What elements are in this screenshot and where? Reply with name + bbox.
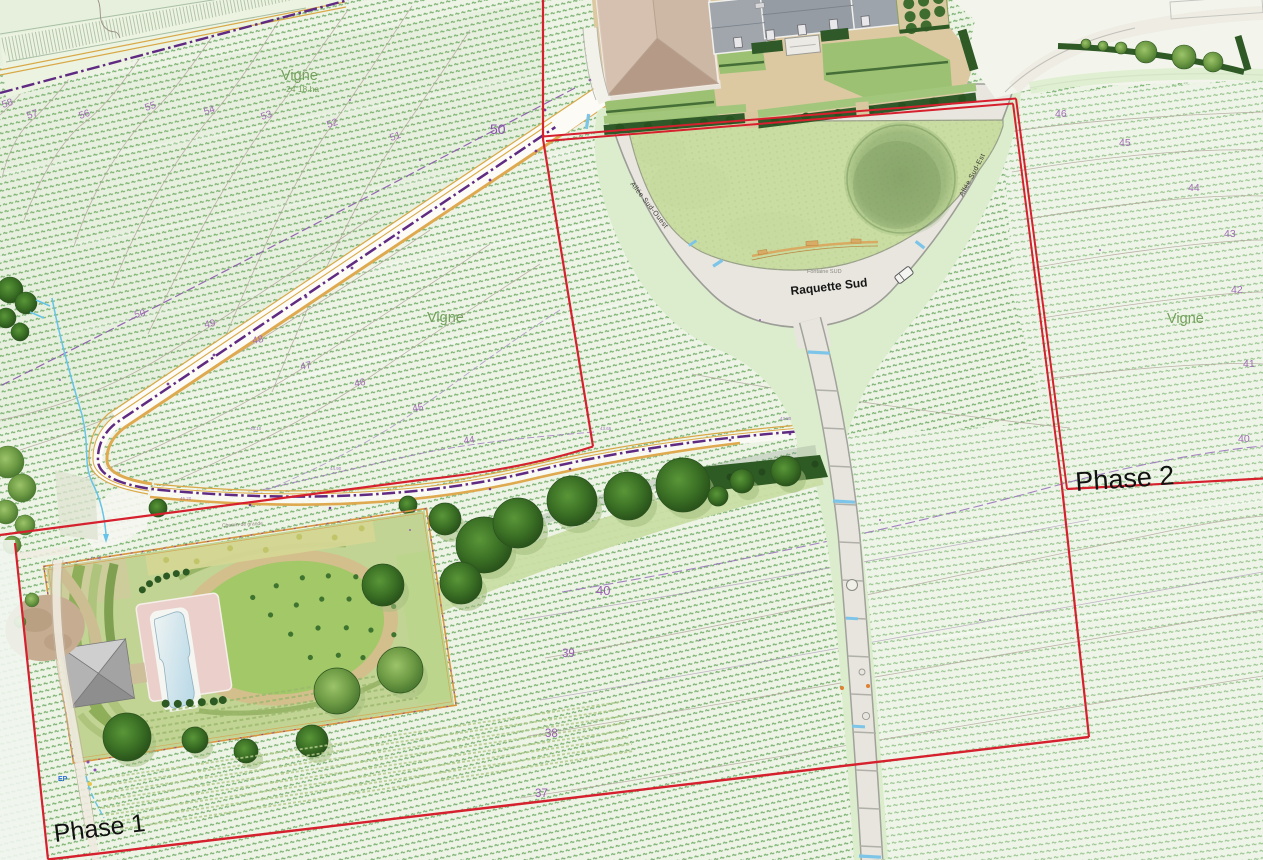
svg-text:37: 37 — [535, 788, 548, 800]
svg-text:Vigne: Vigne — [1167, 311, 1204, 327]
svg-text:44: 44 — [463, 434, 476, 447]
svg-text:40: 40 — [596, 583, 610, 598]
svg-text:50: 50 — [490, 121, 506, 137]
svg-text:Fontaine SUD: Fontaine SUD — [807, 269, 842, 275]
svg-text:39: 39 — [562, 648, 575, 660]
svg-text:EP: EP — [58, 776, 68, 783]
svg-text:Vigne: Vigne — [427, 310, 464, 326]
svg-text:45.20: 45.20 — [180, 496, 192, 501]
svg-text:47.30: 47.30 — [90, 556, 102, 561]
svg-text:43: 43 — [1224, 228, 1236, 240]
svg-text:24 18 ha: 24 18 ha — [286, 84, 319, 94]
svg-text:38: 38 — [545, 728, 558, 740]
svg-text:46: 46 — [1055, 108, 1067, 120]
svg-text:44: 44 — [1188, 182, 1200, 194]
svg-text:42: 42 — [1231, 284, 1243, 296]
svg-text:40: 40 — [1238, 433, 1250, 445]
svg-text:45: 45 — [1119, 137, 1131, 149]
svg-text:41: 41 — [1243, 358, 1255, 370]
svg-text:Vigne: Vigne — [281, 68, 318, 84]
svg-text:42.80: 42.80 — [780, 416, 792, 421]
svg-text:44.90: 44.90 — [330, 466, 342, 471]
svg-text:43.65: 43.65 — [600, 426, 612, 431]
svg-text:46.10: 46.10 — [250, 426, 262, 431]
